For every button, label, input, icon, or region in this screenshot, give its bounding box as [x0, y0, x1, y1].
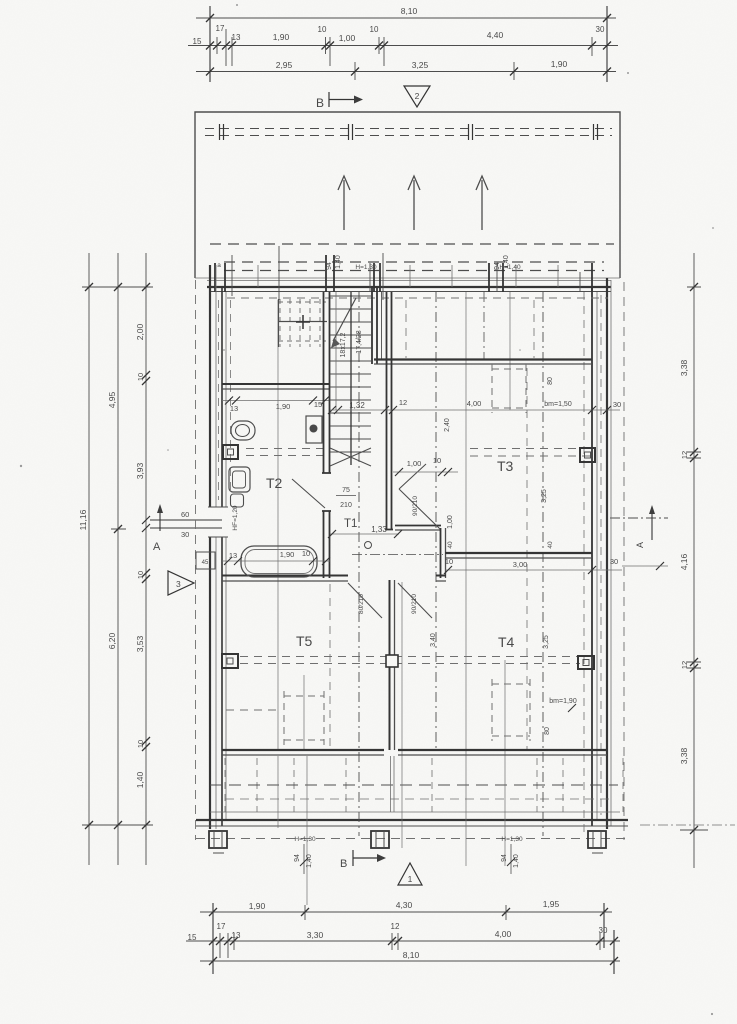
svg-text:10: 10 [370, 25, 379, 34]
svg-text:1,90: 1,90 [273, 32, 290, 42]
svg-text:10: 10 [136, 373, 145, 381]
svg-text:17: 17 [216, 24, 225, 33]
svg-text:T5: T5 [296, 633, 313, 649]
svg-text:1,40: 1,40 [335, 255, 342, 269]
svg-text:80: 80 [547, 377, 554, 385]
svg-text:B: B [340, 858, 347, 870]
svg-text:a: a [217, 262, 221, 269]
svg-text:1,40: 1,40 [513, 854, 520, 868]
svg-text:10: 10 [318, 25, 327, 34]
svg-text:T1: T1 [344, 518, 357, 530]
svg-text:3,40: 3,40 [430, 633, 437, 647]
svg-text:10: 10 [136, 571, 145, 579]
svg-text:40: 40 [447, 541, 454, 549]
svg-text:B: B [316, 96, 324, 110]
svg-text:94: 94 [294, 854, 301, 862]
svg-text:1,00: 1,00 [447, 515, 454, 529]
svg-text:2: 2 [415, 91, 420, 101]
svg-text:12: 12 [399, 398, 407, 407]
svg-text:10: 10 [302, 549, 310, 558]
svg-text:3,53: 3,53 [135, 635, 145, 652]
svg-text:T2: T2 [266, 475, 283, 491]
svg-text:1,40: 1,40 [306, 854, 313, 868]
svg-text:3,38: 3,38 [679, 359, 689, 376]
svg-text:75: 75 [342, 487, 350, 494]
svg-text:30: 30 [613, 400, 621, 409]
svg-text:1: 1 [408, 874, 413, 884]
svg-text:90/210: 90/210 [411, 594, 418, 614]
svg-text:1,90: 1,90 [276, 402, 291, 411]
svg-text:45: 45 [202, 560, 209, 566]
svg-text:3,25: 3,25 [541, 489, 548, 503]
svg-text:94: 94 [501, 854, 508, 862]
svg-text:T3: T3 [497, 458, 514, 474]
svg-text:1,00: 1,00 [407, 459, 422, 468]
svg-text:80: 80 [544, 727, 551, 735]
svg-text:13: 13 [230, 404, 238, 413]
svg-text:4,00: 4,00 [495, 929, 512, 939]
svg-text:4,30: 4,30 [396, 900, 413, 910]
svg-text:12: 12 [391, 922, 400, 931]
svg-text:15: 15 [314, 400, 322, 409]
svg-text:10: 10 [136, 740, 145, 748]
svg-text:H=1,30: H=1,30 [294, 836, 316, 843]
svg-text:30: 30 [596, 25, 605, 34]
svg-text:13: 13 [232, 33, 241, 42]
svg-text:bm=1,90: bm=1,90 [549, 698, 577, 705]
svg-text:2,00: 2,00 [135, 323, 145, 340]
svg-text:3,93: 3,93 [135, 462, 145, 479]
svg-text:3: 3 [176, 579, 181, 589]
svg-text:17: 17 [217, 922, 226, 931]
svg-text:1,32: 1,32 [349, 401, 365, 410]
svg-text:15: 15 [188, 933, 197, 942]
svg-text:1,33: 1,33 [371, 525, 387, 534]
svg-text:90/210: 90/210 [412, 496, 419, 516]
svg-text:4,16: 4,16 [679, 553, 689, 570]
svg-text:H=1,30: H=1,30 [355, 264, 377, 271]
svg-text:1,95: 1,95 [543, 899, 560, 909]
svg-text:3,30: 3,30 [307, 930, 324, 940]
svg-text:4,95: 4,95 [107, 391, 117, 408]
svg-text:H=1,40: H=1,40 [499, 264, 521, 271]
svg-text:11,16: 11,16 [78, 509, 88, 530]
svg-text:15: 15 [193, 37, 202, 46]
svg-text:60: 60 [181, 510, 189, 519]
svg-text:13: 13 [229, 551, 237, 560]
svg-text:12: 12 [680, 451, 689, 459]
svg-text:13: 13 [232, 931, 241, 940]
svg-text:40: 40 [547, 541, 554, 549]
svg-text:A: A [153, 541, 161, 553]
svg-text:2,40: 2,40 [444, 418, 451, 432]
svg-text:8,10: 8,10 [401, 6, 418, 16]
svg-text:1,90: 1,90 [249, 901, 266, 911]
svg-text:10: 10 [433, 456, 441, 465]
svg-text:3,38: 3,38 [679, 747, 689, 764]
svg-text:3,25: 3,25 [543, 635, 550, 649]
svg-text:3,00: 3,00 [513, 560, 528, 569]
svg-text:H=1,30: H=1,30 [501, 836, 523, 843]
svg-text:1,90: 1,90 [280, 550, 295, 559]
svg-text:4,00: 4,00 [467, 399, 482, 408]
svg-text:12: 12 [680, 661, 689, 669]
svg-text:4,40: 4,40 [487, 30, 504, 40]
svg-text:17,4/28: 17,4/28 [356, 330, 363, 353]
svg-text:3,25: 3,25 [412, 60, 429, 70]
svg-text:30: 30 [181, 530, 189, 539]
svg-text:80/210: 80/210 [358, 594, 365, 614]
svg-text:30: 30 [599, 926, 608, 935]
svg-text:HF=1,20: HF=1,20 [232, 505, 239, 530]
svg-text:bm=1,50: bm=1,50 [544, 401, 572, 408]
svg-text:30: 30 [610, 557, 618, 566]
svg-text:1,40: 1,40 [135, 771, 145, 788]
svg-text:10: 10 [445, 557, 453, 566]
svg-text:8,10: 8,10 [403, 950, 420, 960]
svg-text:18x17,2: 18x17,2 [340, 332, 347, 357]
svg-text:T4: T4 [498, 634, 515, 650]
svg-text:210: 210 [340, 502, 352, 509]
svg-text:1,90: 1,90 [551, 59, 568, 69]
svg-text:A: A [635, 542, 645, 548]
svg-text:2,95: 2,95 [276, 60, 293, 70]
svg-text:6,20: 6,20 [107, 632, 117, 649]
svg-text:94: 94 [326, 262, 333, 270]
svg-text:1,00: 1,00 [339, 33, 356, 43]
